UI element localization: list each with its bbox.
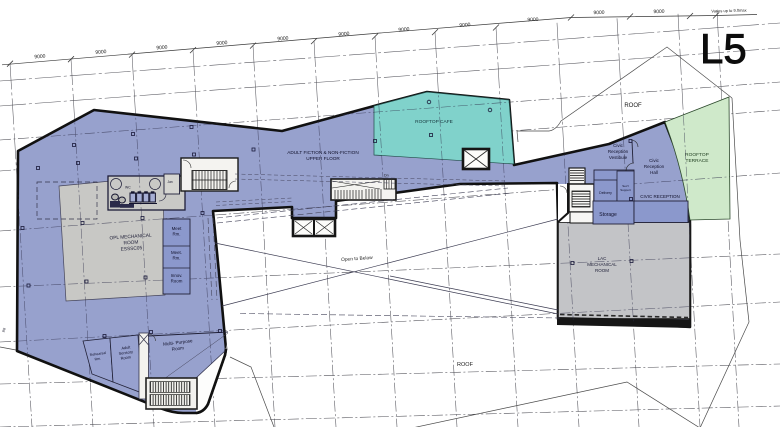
svg-text:Vestibule: Vestibule bbox=[609, 155, 628, 160]
svg-text:ROOF: ROOF bbox=[457, 362, 474, 368]
svg-text:Room: Room bbox=[171, 279, 183, 284]
svg-text:LAC: LAC bbox=[598, 256, 608, 261]
svg-text:ADULT FICTION & NON-FICTION: ADULT FICTION & NON-FICTION bbox=[287, 150, 358, 155]
svg-text:Civic: Civic bbox=[613, 143, 623, 148]
svg-text:Innov.: Innov. bbox=[171, 273, 183, 278]
svg-text:9000: 9000 bbox=[459, 22, 471, 29]
svg-text:TERRACE: TERRACE bbox=[686, 158, 709, 164]
svg-text:Reception: Reception bbox=[608, 149, 629, 154]
svg-text:9000: 9000 bbox=[338, 31, 350, 38]
svg-text:Meet.: Meet. bbox=[171, 250, 182, 255]
svg-text:9000: 9000 bbox=[95, 49, 107, 56]
svg-text:9000: 9000 bbox=[527, 17, 539, 24]
svg-text:ROOM: ROOM bbox=[595, 268, 609, 273]
svg-text:Meet: Meet bbox=[172, 226, 183, 231]
svg-text:9000: 9000 bbox=[34, 54, 46, 61]
svg-text:ROOFTOP: ROOFTOP bbox=[685, 152, 709, 158]
svg-text:Civic: Civic bbox=[649, 158, 659, 163]
svg-text:9000: 9000 bbox=[156, 45, 168, 52]
svg-text:Reception: Reception bbox=[644, 164, 665, 169]
svg-text:9000: 9000 bbox=[398, 27, 410, 34]
svg-text:UPPER FLOOR: UPPER FLOOR bbox=[306, 156, 340, 161]
svg-text:9000: 9000 bbox=[216, 40, 228, 47]
svg-text:CIVIC RECEPTION: CIVIC RECEPTION bbox=[640, 194, 680, 199]
svg-text:ROOFTOP CAFE: ROOFTOP CAFE bbox=[415, 119, 453, 125]
svg-text:L5: L5 bbox=[700, 25, 747, 72]
svg-text:ROOF: ROOF bbox=[624, 103, 642, 109]
svg-text:MECHANICAL: MECHANICAL bbox=[587, 262, 617, 267]
svg-text:Varies up to 9.0max: Varies up to 9.0max bbox=[711, 8, 746, 14]
svg-text:Jan: Jan bbox=[168, 180, 173, 184]
svg-text:Delivery: Delivery bbox=[599, 191, 612, 195]
svg-text:9000: 9000 bbox=[653, 9, 664, 15]
svg-text:Storage: Storage bbox=[599, 212, 617, 218]
svg-text:Rm.: Rm. bbox=[172, 256, 180, 261]
svg-text:Support: Support bbox=[620, 188, 631, 192]
svg-text:WC: WC bbox=[125, 186, 131, 190]
svg-text:Rm.: Rm. bbox=[172, 232, 180, 237]
svg-text:9000: 9000 bbox=[277, 36, 289, 43]
svg-text:9000: 9000 bbox=[593, 10, 604, 16]
svg-text:ROOM: ROOM bbox=[123, 239, 138, 246]
svg-text:Hall: Hall bbox=[650, 170, 658, 175]
svg-text:Dn: Dn bbox=[384, 174, 389, 178]
